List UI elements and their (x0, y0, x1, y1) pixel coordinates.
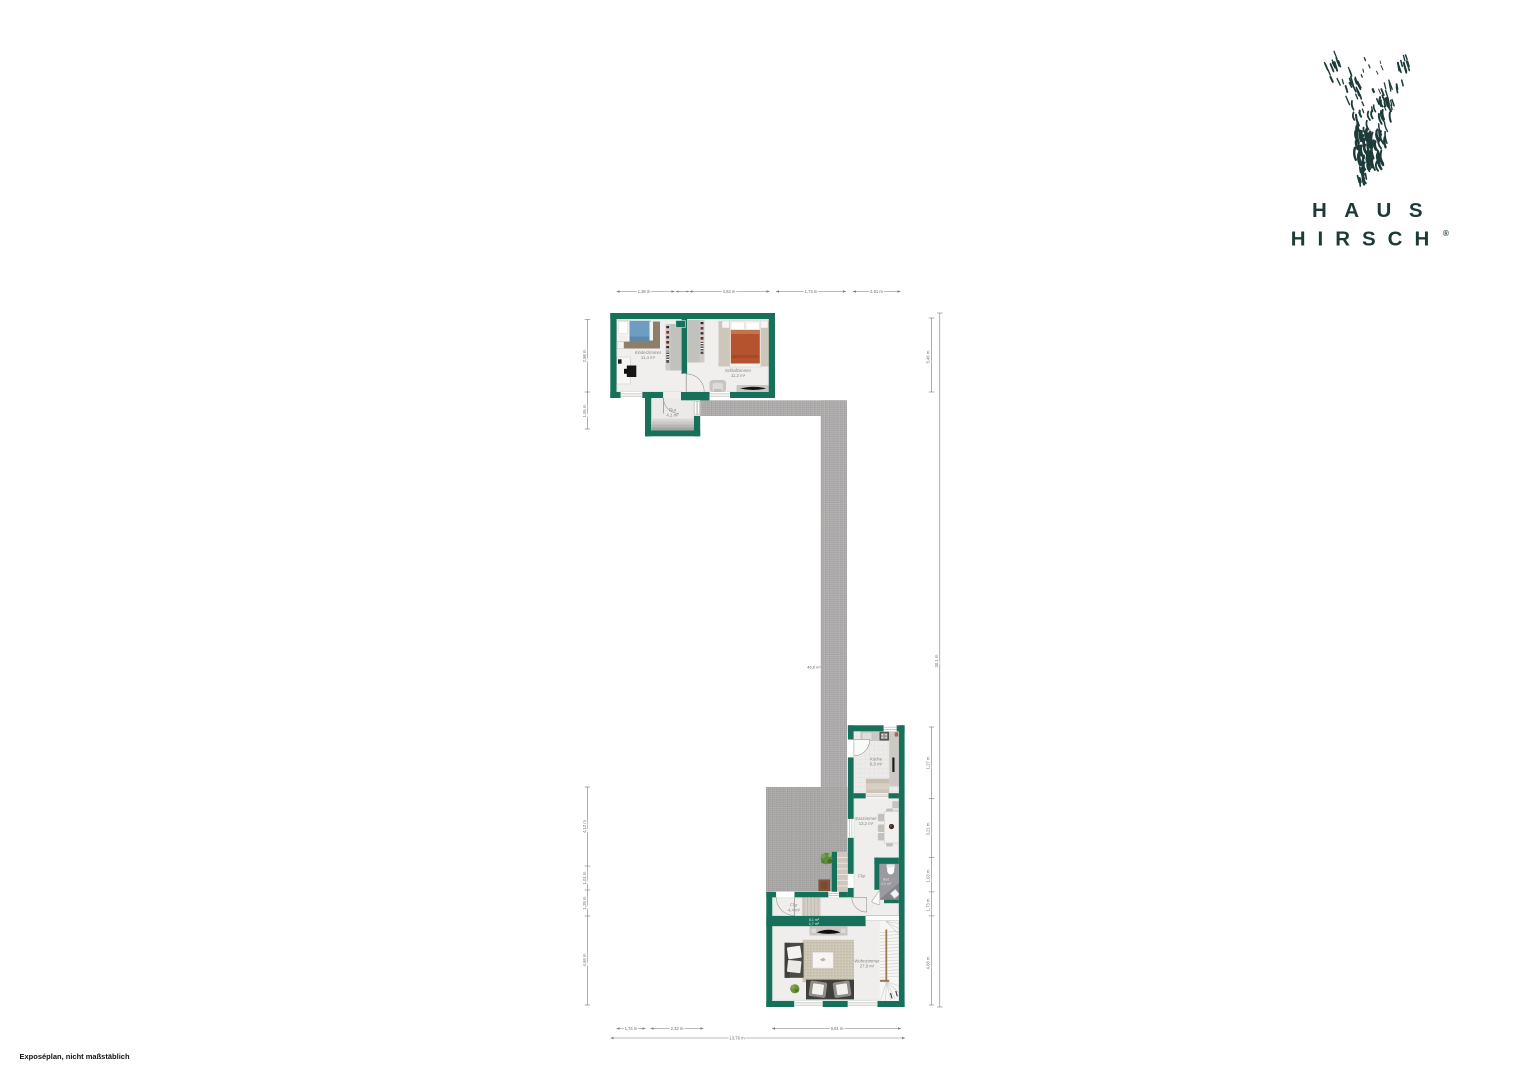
svg-text:Exposéplan, nicht maßstäblich: Exposéplan, nicht maßstäblich (20, 1052, 130, 1061)
svg-text:HIRSCH: HIRSCH (1291, 228, 1442, 251)
svg-text:30,1 m: 30,1 m (934, 654, 939, 667)
svg-text:13,76 m: 13,76 m (729, 1036, 745, 1041)
svg-text:Flur: Flur (858, 874, 866, 879)
svg-text:13,2 m²: 13,2 m² (859, 821, 874, 826)
svg-text:1,7 m²: 1,7 m² (809, 922, 820, 926)
svg-text:1,73 m: 1,73 m (805, 289, 818, 294)
svg-text:®: ® (1443, 229, 1449, 238)
svg-text:2,98 m: 2,98 m (582, 349, 587, 362)
svg-text:1,74 m: 1,74 m (625, 1026, 638, 1031)
svg-text:5,46 m: 5,46 m (926, 350, 931, 363)
svg-text:4,1 m²: 4,1 m² (666, 413, 679, 418)
svg-text:2,61 m: 2,61 m (870, 289, 883, 294)
svg-text:6,6 m²: 6,6 m² (870, 762, 883, 767)
svg-text:1,01 m: 1,01 m (582, 871, 587, 884)
svg-text:11,2 m²: 11,2 m² (731, 373, 746, 378)
svg-text:1,38 m: 1,38 m (638, 289, 651, 294)
svg-text:46,6 m²: 46,6 m² (807, 665, 821, 670)
svg-text:1,03 m: 1,03 m (926, 869, 931, 882)
svg-text:3,9 m²: 3,9 m² (881, 882, 892, 886)
svg-text:HAUS: HAUS (1312, 199, 1440, 222)
svg-text:3,21 m: 3,21 m (926, 822, 931, 835)
svg-text:9,81 m: 9,81 m (831, 1026, 844, 1031)
svg-text:1,55 m: 1,55 m (582, 404, 587, 417)
svg-text:4,68 m: 4,68 m (926, 956, 931, 969)
svg-text:2,32 m: 2,32 m (671, 1026, 684, 1031)
svg-text:4,63 m: 4,63 m (723, 289, 736, 294)
svg-text:27,9 m²: 27,9 m² (860, 964, 875, 969)
svg-text:1,29 m: 1,29 m (582, 896, 587, 909)
svg-text:4,12 m: 4,12 m (582, 820, 587, 833)
svg-text:4,68 m: 4,68 m (582, 953, 587, 966)
svg-text:11,4 m²: 11,4 m² (641, 355, 656, 360)
svg-text:1,27 m: 1,27 m (926, 756, 931, 769)
svg-text:1,73 m: 1,73 m (926, 898, 931, 911)
